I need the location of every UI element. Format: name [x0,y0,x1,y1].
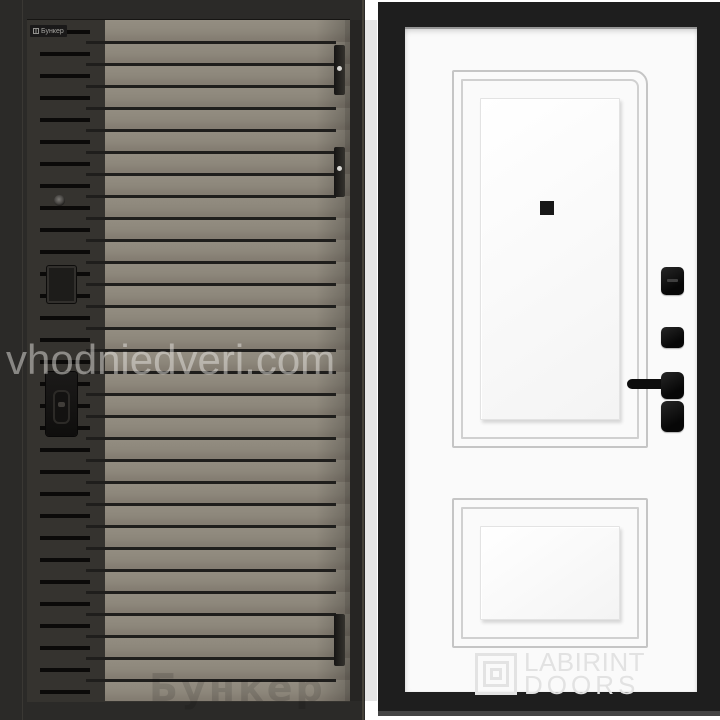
keyhole-slot [667,279,678,282]
lock-block [661,327,684,348]
dark-door-inner-panel: Бункер [27,19,350,702]
dark-door-slat-dashes [40,22,90,698]
handle-rosette-block [661,372,684,399]
dark-door-right-edge [362,0,364,720]
hinge-top [334,45,345,95]
doorbell-button [54,195,65,206]
logo-line2: DOORS [524,674,645,696]
ghost-brand-text: Бункер [149,666,326,710]
white-door-bottom-edge [378,711,720,716]
upper-panel-field [480,98,620,420]
hinge-pin [337,166,342,171]
labyrinth-maze-icon [475,653,517,695]
lower-panel-molding [461,507,639,639]
lower-lock-block [661,401,684,432]
dark-door-left-edge [22,0,23,720]
labirint-logo-text: LABIRINT DOORS [524,651,645,696]
hinge-middle [334,147,345,197]
brand-badge: Бункер [30,25,67,37]
lock-escutcheon [47,266,76,303]
door-handle-lock-unit [46,372,77,436]
dark-door: Бункер Бункер [0,0,365,720]
dark-door-insert-shade [345,20,377,701]
handle-thumbturn [58,402,65,407]
peephole [540,201,554,215]
white-door-face: LABIRINT DOORS [405,27,697,692]
brand-badge-label: Бункер [41,28,64,35]
dark-door-grooves [86,22,336,698]
upper-raised-panel [452,70,648,448]
grid-logo-icon [33,28,39,34]
hinge-bottom [334,614,345,666]
upper-panel-molding [461,79,639,439]
lower-panel-field [480,526,620,620]
product-image: Бункер Бункер [0,0,720,720]
handle-inner-plate [53,390,70,424]
white-door: LABIRINT DOORS [378,2,720,716]
labirint-logo: LABIRINT DOORS [475,651,645,696]
keyhole-cover-block [661,267,684,295]
hinge-pin [337,66,342,71]
lower-raised-panel [452,498,648,648]
